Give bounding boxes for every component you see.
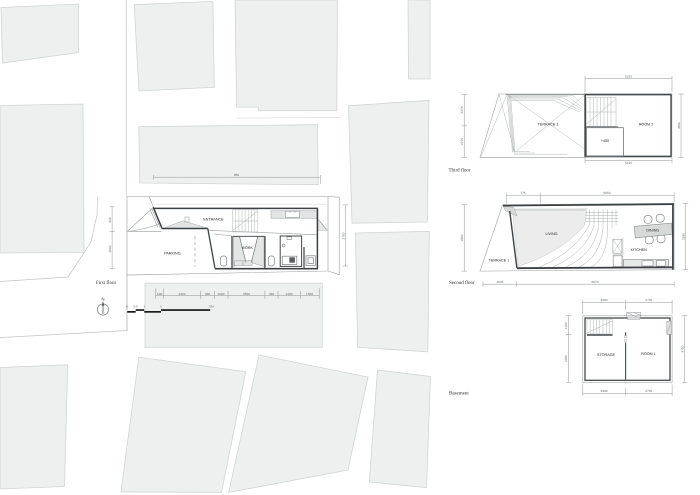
- svg-text:Third floor: Third floor: [449, 168, 471, 174]
- svg-text:1: 1: [143, 305, 145, 309]
- svg-text:0: 0: [126, 305, 128, 309]
- svg-text:ROOM 1: ROOM 1: [641, 352, 656, 356]
- svg-text:2045: 2045: [497, 280, 504, 284]
- svg-text:N: N: [101, 297, 104, 302]
- svg-text:460: 460: [269, 292, 274, 296]
- svg-text:2320: 2320: [179, 292, 186, 296]
- svg-text:850: 850: [234, 173, 239, 177]
- svg-text:2700: 2700: [341, 232, 345, 239]
- svg-text:1000: 1000: [564, 322, 568, 329]
- svg-text:PARKING: PARKING: [164, 252, 180, 256]
- svg-text:2275: 2275: [460, 138, 464, 145]
- svg-text:3400: 3400: [601, 298, 608, 302]
- svg-text:DINING: DINING: [646, 229, 659, 233]
- svg-text:775: 775: [520, 191, 525, 195]
- svg-text:100: 100: [157, 292, 162, 296]
- svg-text:5M: 5M: [209, 305, 214, 309]
- svg-text:TERRACE 1: TERRACE 1: [489, 259, 510, 263]
- svg-text:5315: 5315: [625, 75, 632, 79]
- svg-text:460: 460: [205, 292, 210, 296]
- svg-text:2735: 2735: [645, 298, 652, 302]
- svg-text:2275: 2275: [460, 106, 464, 113]
- svg-text:ENTRANCE: ENTRANCE: [203, 218, 224, 222]
- svg-text:5315: 5315: [625, 161, 632, 165]
- svg-text:LIVING: LIVING: [545, 232, 557, 236]
- svg-text:STORAGE: STORAGE: [597, 353, 616, 357]
- svg-text:First floor: First floor: [96, 280, 116, 286]
- svg-text:WORK: WORK: [242, 246, 254, 250]
- svg-text:Second floor: Second floor: [449, 280, 475, 286]
- svg-text:3400: 3400: [601, 389, 608, 393]
- svg-text:6070: 6070: [592, 280, 599, 284]
- svg-text:2: 2: [160, 305, 162, 309]
- svg-text:3500: 3500: [243, 292, 250, 296]
- svg-text:940: 940: [108, 217, 112, 222]
- svg-text:+400: +400: [601, 139, 609, 143]
- svg-text:4750: 4750: [680, 345, 684, 352]
- svg-text:5850: 5850: [604, 191, 611, 195]
- svg-text:Basement: Basement: [449, 391, 469, 397]
- svg-text:0.5: 0.5: [134, 305, 139, 309]
- svg-text:2735: 2735: [645, 389, 652, 393]
- svg-text:TERRACE 2: TERRACE 2: [538, 123, 559, 127]
- svg-text:1860: 1860: [460, 234, 464, 241]
- svg-text:2590: 2590: [681, 233, 685, 240]
- svg-text:1660: 1660: [108, 245, 112, 252]
- svg-text:1400: 1400: [286, 292, 293, 296]
- svg-text:2450: 2450: [564, 355, 568, 362]
- svg-text:4550: 4550: [677, 122, 681, 129]
- svg-text:1000: 1000: [218, 292, 225, 296]
- svg-text:ROOM 2: ROOM 2: [639, 123, 654, 127]
- svg-text:1500: 1500: [306, 292, 313, 296]
- svg-text:KITCHEN: KITCHEN: [631, 248, 648, 252]
